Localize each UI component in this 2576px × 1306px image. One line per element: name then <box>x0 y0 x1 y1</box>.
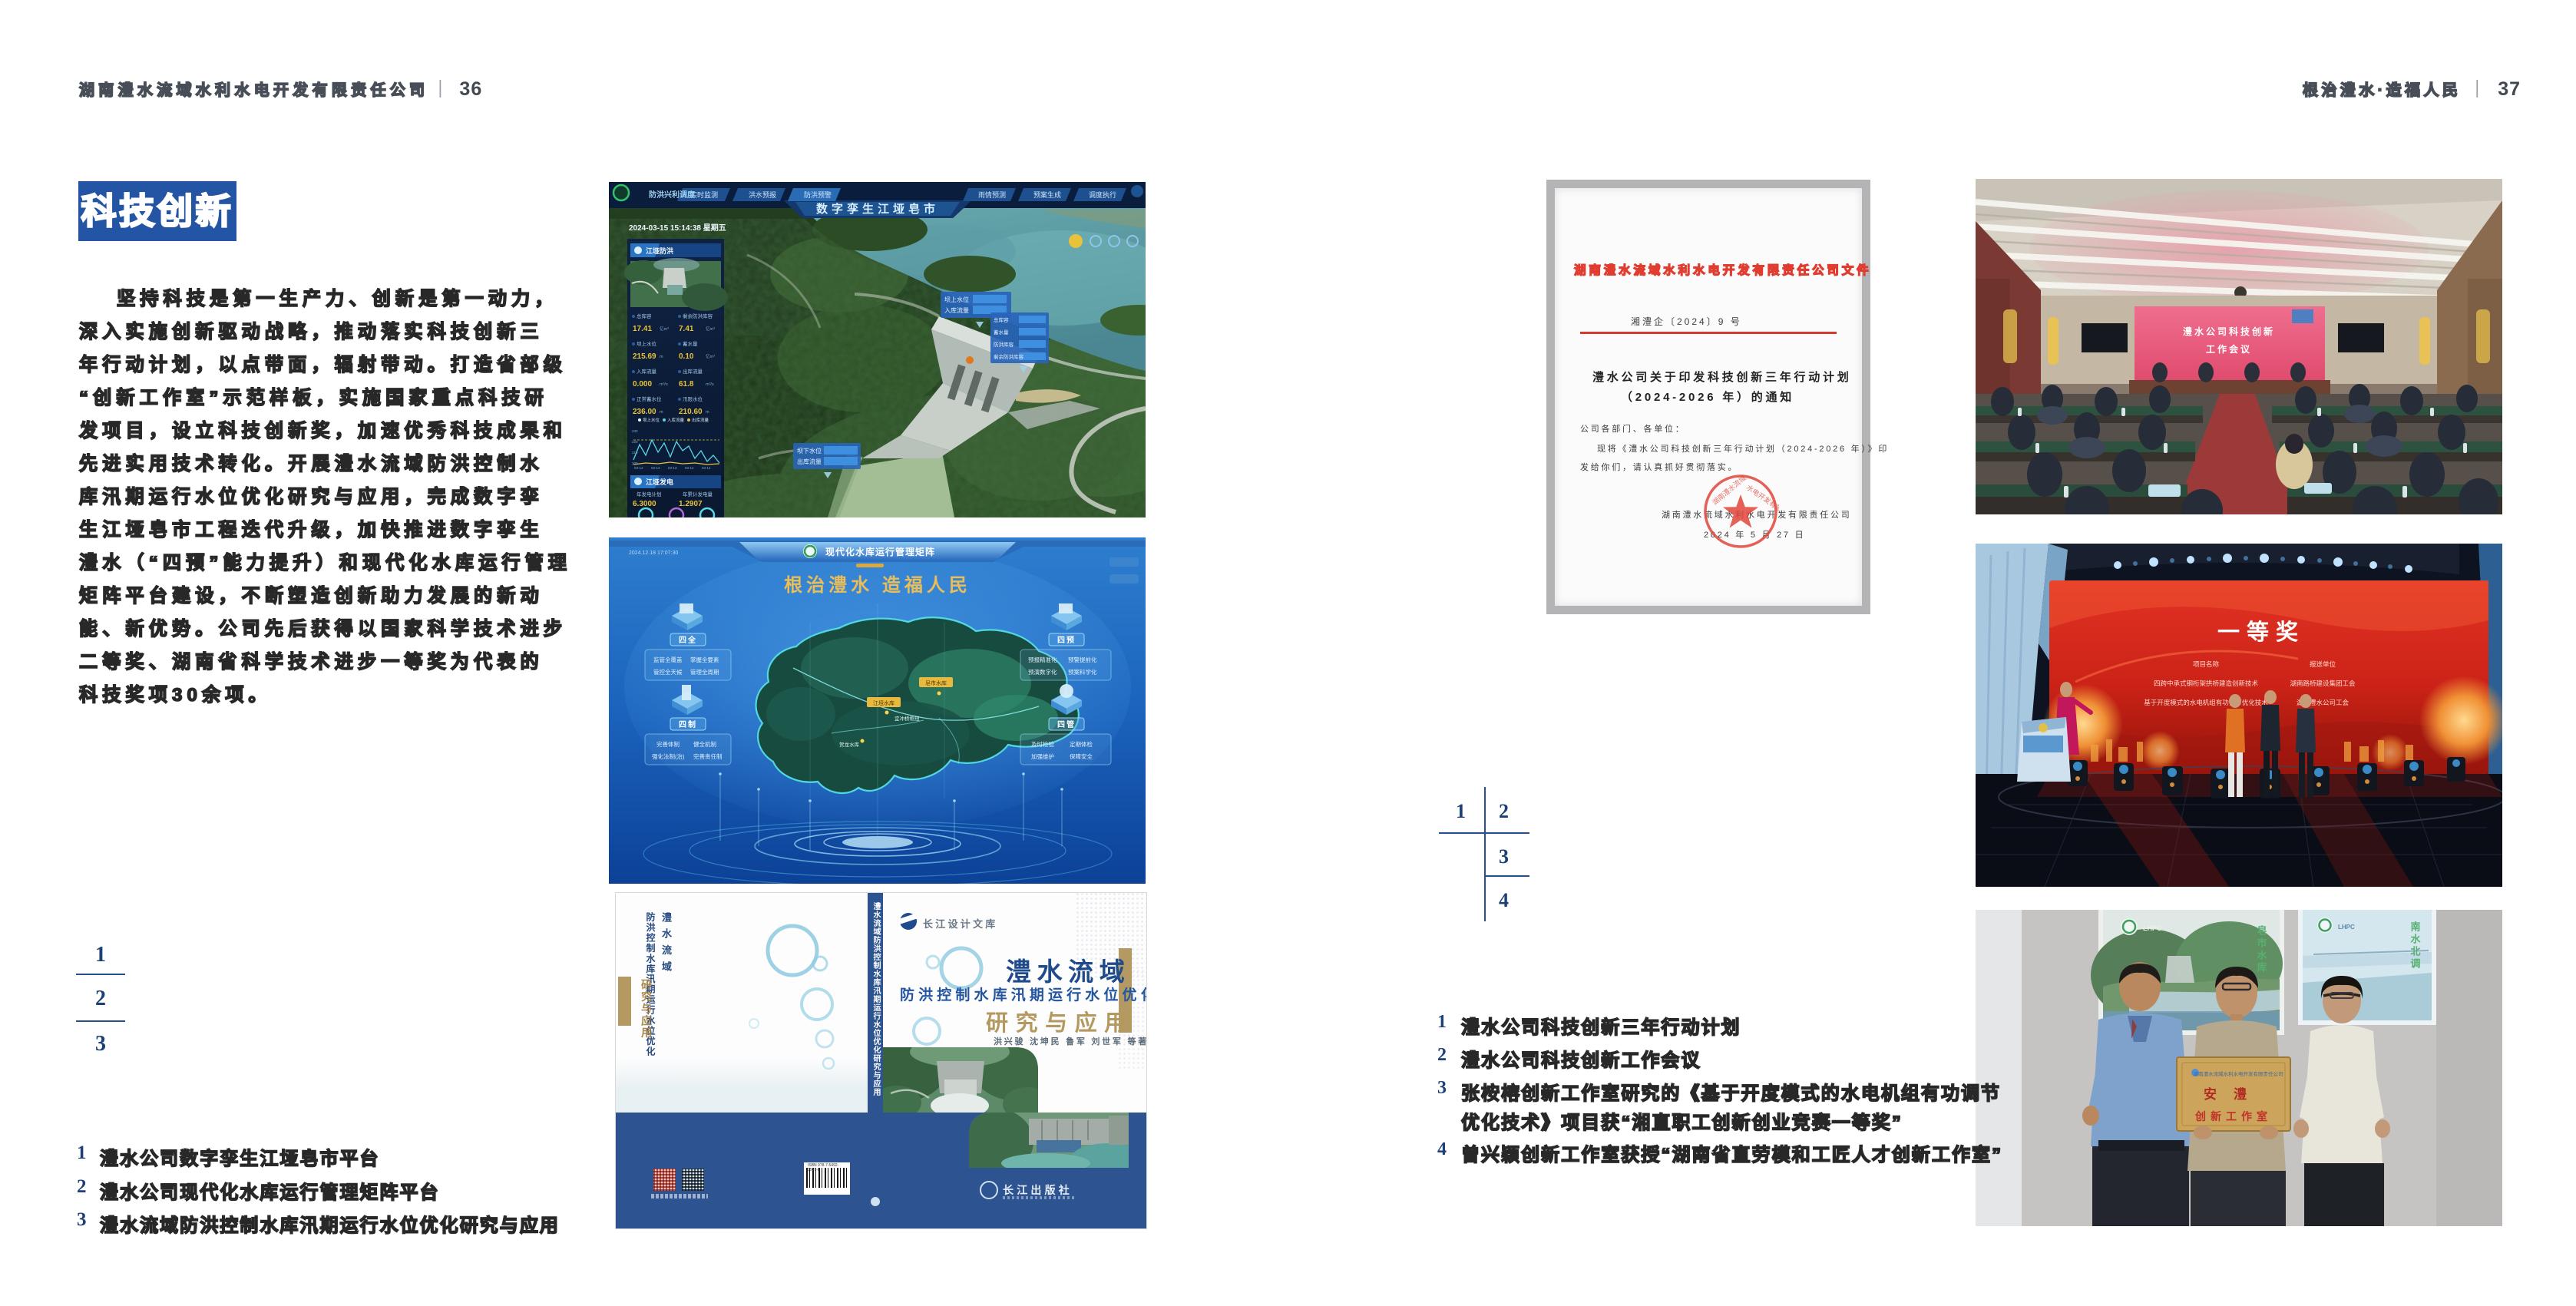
svg-text:入库流量: 入库流量 <box>637 368 657 375</box>
svg-text:2024.12.18 17:07:30: 2024.12.18 17:07:30 <box>629 551 678 556</box>
svg-text:数字孪生江垭皂市: 数字孪生江垭皂市 <box>816 202 939 216</box>
svg-text:03-13: 03-13 <box>668 466 677 470</box>
svg-text:完善责任制: 完善责任制 <box>693 752 723 760</box>
svg-text:年发电计划: 年发电计划 <box>637 491 662 498</box>
svg-text:管控全天候: 管控全天候 <box>653 668 683 676</box>
svg-text:亿m³: 亿m³ <box>706 326 715 332</box>
svg-text:防洪兴利调度: 防洪兴利调度 <box>649 190 696 200</box>
svg-text:17.41: 17.41 <box>633 325 652 333</box>
svg-text:预报精准化: 预报精准化 <box>1028 656 1057 663</box>
svg-text:215.69: 215.69 <box>633 352 656 361</box>
svg-text:皂市水库: 皂市水库 <box>2256 924 2267 974</box>
svg-text:6.3000: 6.3000 <box>633 500 656 508</box>
svg-text:防洪库容: 防洪库容 <box>994 341 1014 348</box>
svg-text:236.00: 236.00 <box>633 408 656 416</box>
svg-text:坝上水位: 坝上水位 <box>944 296 969 303</box>
svg-text:定期体检: 定期体检 <box>1070 740 1093 748</box>
svg-text:220: 220 <box>632 440 638 444</box>
svg-text:03-14: 03-14 <box>685 466 694 470</box>
svg-text:出库流量: 出库流量 <box>692 417 709 423</box>
svg-text:澧水公司科技创新: 澧水公司科技创新 <box>2183 326 2275 337</box>
svg-text:工作会议: 工作会议 <box>2206 343 2252 355</box>
svg-text:基于开度模式的水电机组有功调节优化技术: 基于开度模式的水电机组有功调节优化技术 <box>2144 699 2268 706</box>
svg-text:现代化水库运行管理矩阵: 现代化水库运行管理矩阵 <box>825 546 935 557</box>
svg-text:年累计发电量: 年累计发电量 <box>683 491 713 498</box>
svg-text:江垭水库: 江垭水库 <box>873 699 894 706</box>
svg-text:03-13: 03-13 <box>651 466 660 470</box>
svg-text:完善体制: 完善体制 <box>656 740 680 748</box>
svg-text:入库流量: 入库流量 <box>667 417 685 423</box>
svg-text:洪水预报: 洪水预报 <box>749 190 776 199</box>
svg-text:安澧: 安澧 <box>2204 1086 2264 1102</box>
svg-text:四制: 四制 <box>679 719 697 729</box>
svg-text:入库流量: 入库流量 <box>944 306 969 314</box>
svg-text:坝上水位: 坝上水位 <box>637 340 657 347</box>
svg-text:210.60: 210.60 <box>679 408 703 416</box>
svg-text:调度执行: 调度执行 <box>1089 190 1116 199</box>
svg-text:健全机制: 健全机制 <box>693 740 716 748</box>
svg-text:总库容: 总库容 <box>994 316 1009 323</box>
svg-text:61.8: 61.8 <box>679 380 694 388</box>
svg-text:亿m³: 亿m³ <box>706 353 715 359</box>
svg-text:2024-03-15 15:14:38 星期五: 2024-03-15 15:14:38 星期五 <box>629 223 726 233</box>
svg-text:LHPC: LHPC <box>2143 924 2162 932</box>
svg-text:四预: 四预 <box>1057 636 1076 645</box>
svg-text:保障安全: 保障安全 <box>1070 752 1093 760</box>
svg-text:预演数字化: 预演数字化 <box>1028 668 1057 676</box>
svg-text:创新工作室: 创新工作室 <box>2194 1110 2272 1122</box>
svg-text:m: m <box>660 410 663 415</box>
svg-text:湖南澧水流域水利水电开发有限责任公司: 湖南澧水流域水利水电开发有限责任公司 <box>2194 1070 2283 1077</box>
svg-text:m³/s: m³/s <box>706 382 714 387</box>
svg-text:蓄水量: 蓄水量 <box>994 329 1009 336</box>
svg-text:剩余防洪库容: 剩余防洪库容 <box>994 353 1024 360</box>
svg-text:及时检验: 及时检验 <box>1031 740 1054 748</box>
svg-text:加强维护: 加强维护 <box>1031 752 1054 760</box>
svg-text:宜冲桥枢纽: 宜冲桥枢纽 <box>894 715 920 722</box>
svg-text:亿m³: 亿m³ <box>660 326 669 332</box>
svg-text:坝上水位: 坝上水位 <box>643 417 660 423</box>
svg-text:剩余防洪库容: 剩余防洪库容 <box>683 312 713 319</box>
svg-text:蓄水量: 蓄水量 <box>683 340 698 347</box>
svg-text:出库流量: 出库流量 <box>683 368 703 375</box>
svg-text:LHPC: LHPC <box>2338 924 2355 931</box>
svg-text:掌握全要素: 掌握全要素 <box>690 656 719 663</box>
svg-text:m³/s: m³/s <box>660 382 668 387</box>
svg-text:湖南路桥建设集团工会: 湖南路桥建设集团工会 <box>2290 679 2356 687</box>
svg-text:03-14: 03-14 <box>702 466 711 470</box>
svg-text:皂市水库: 皂市水库 <box>925 679 947 686</box>
svg-text:一等奖: 一等奖 <box>2217 619 2305 645</box>
svg-text:m: m <box>660 355 663 359</box>
svg-text:南水北调: 南水北调 <box>2409 921 2421 970</box>
svg-text:总库容: 总库容 <box>637 312 652 319</box>
svg-text:7.41: 7.41 <box>679 325 694 333</box>
svg-text:根治澧水 造福人民: 根治澧水 造福人民 <box>784 574 971 596</box>
svg-text:管理全周期: 管理全周期 <box>690 668 719 676</box>
svg-text:正常蓄水位: 正常蓄水位 <box>637 395 662 402</box>
svg-text:预案科学化: 预案科学化 <box>1068 668 1097 676</box>
svg-text:江垭发电: 江垭发电 <box>646 478 673 486</box>
svg-text:出库流量: 出库流量 <box>797 458 822 465</box>
svg-text:监管全覆盖: 监管全覆盖 <box>653 656 683 663</box>
svg-text:预警提前化: 预警提前化 <box>1068 656 1097 663</box>
svg-text:四跨中承式钢桁架拱桥建造创新技术: 四跨中承式钢桁架拱桥建造创新技术 <box>2154 679 2259 687</box>
svg-text:预案生成: 预案生成 <box>1033 190 1061 199</box>
svg-text:汛限水位: 汛限水位 <box>683 395 703 402</box>
svg-text:210: 210 <box>632 451 638 455</box>
svg-text:0.000: 0.000 <box>633 380 652 388</box>
svg-text:03-12: 03-12 <box>634 466 643 470</box>
svg-text:0.10: 0.10 <box>679 352 694 361</box>
svg-text:m: m <box>706 410 709 415</box>
svg-text:雨情预测: 雨情预测 <box>978 190 1006 199</box>
svg-text:1.2907: 1.2907 <box>679 500 703 508</box>
svg-text:四管: 四管 <box>1057 719 1076 729</box>
svg-text:200: 200 <box>632 461 638 465</box>
svg-text:报送单位: 报送单位 <box>2310 660 2336 668</box>
svg-text:贺龙水库: 贺龙水库 <box>839 741 860 748</box>
svg-text:坝下水位: 坝下水位 <box>797 447 822 455</box>
svg-text:江垭防洪: 江垭防洪 <box>646 246 673 255</box>
svg-text:230: 230 <box>632 429 638 433</box>
svg-text:四全: 四全 <box>679 635 697 645</box>
svg-text:防洪预警: 防洪预警 <box>804 190 832 199</box>
svg-text:强化法制(治): 强化法制(治) <box>652 752 685 760</box>
svg-text:项目名称: 项目名称 <box>2193 660 2220 668</box>
